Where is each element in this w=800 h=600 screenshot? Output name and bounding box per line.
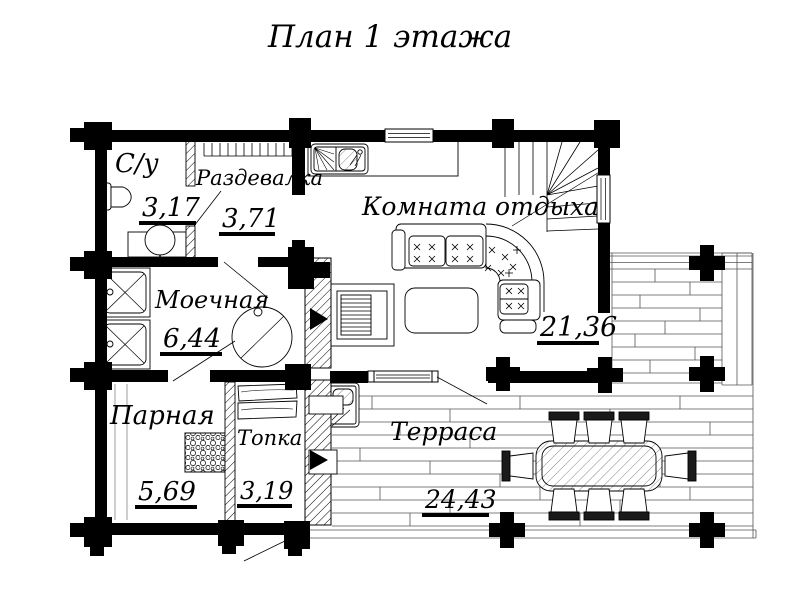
chair-icon xyxy=(502,451,533,481)
room-area-rest-room: 21,36 xyxy=(539,312,617,343)
window-icon xyxy=(368,371,438,382)
sink-bowl-icon xyxy=(339,149,357,170)
area-underline xyxy=(422,513,489,517)
washbasin-icon xyxy=(145,225,175,255)
room-label-topka: Топка xyxy=(237,426,302,450)
partition-wall xyxy=(186,226,195,262)
room-label-moechnaya: Моечная xyxy=(154,286,269,314)
room-area-topka: 3,19 xyxy=(240,477,293,505)
area-underline xyxy=(135,505,197,509)
floor-plan-drawing: План 1 этажа С/у 3,17 Раздевалка 3,71 Ко… xyxy=(0,0,800,600)
area-underline xyxy=(219,232,275,236)
coffee-table-icon xyxy=(405,288,478,333)
room-area-moechnaya: 6,44 xyxy=(163,324,221,354)
room-label-terrasa: Терраса xyxy=(390,417,497,446)
area-underline xyxy=(139,221,196,225)
partition-wall xyxy=(225,382,235,523)
room-label-razdevalka: Раздевалка xyxy=(195,166,323,190)
window-icon xyxy=(385,129,433,142)
chair-icon xyxy=(665,451,696,481)
room-area-terrasa: 24,43 xyxy=(424,485,497,514)
chair-icon xyxy=(549,412,579,443)
chair-icon xyxy=(584,489,614,520)
area-underline xyxy=(237,504,292,508)
sauna-heater-icon xyxy=(185,433,225,472)
room-label-rest-room: Комната отдыха xyxy=(361,192,599,221)
chair-icon xyxy=(549,489,579,520)
page-title: План 1 этажа xyxy=(267,19,512,55)
room-area-razdevalka: 3,71 xyxy=(222,204,280,234)
toilet-bowl-icon xyxy=(111,187,131,207)
area-underline xyxy=(160,352,222,356)
stove-niche xyxy=(309,396,343,414)
floor-plan-page: План 1 этажа С/у 3,17 Раздевалка 3,71 Ко… xyxy=(0,0,800,600)
area-underline xyxy=(537,341,599,345)
room-area-parnaya: 5,69 xyxy=(138,477,196,507)
fireplace-icon xyxy=(330,284,394,346)
firewood-icon xyxy=(238,401,297,419)
room-label-parnaya: Парная xyxy=(109,401,215,431)
chair-icon xyxy=(584,412,614,443)
partition-wall xyxy=(186,140,195,186)
room-area-su: 3,17 xyxy=(142,193,200,223)
room-label-su: С/у xyxy=(115,149,159,179)
chair-icon xyxy=(619,489,649,520)
chair-icon xyxy=(619,412,649,443)
shower-tray-icon xyxy=(100,320,150,369)
dining-table-icon xyxy=(536,441,662,491)
faucet-icon xyxy=(358,150,362,154)
